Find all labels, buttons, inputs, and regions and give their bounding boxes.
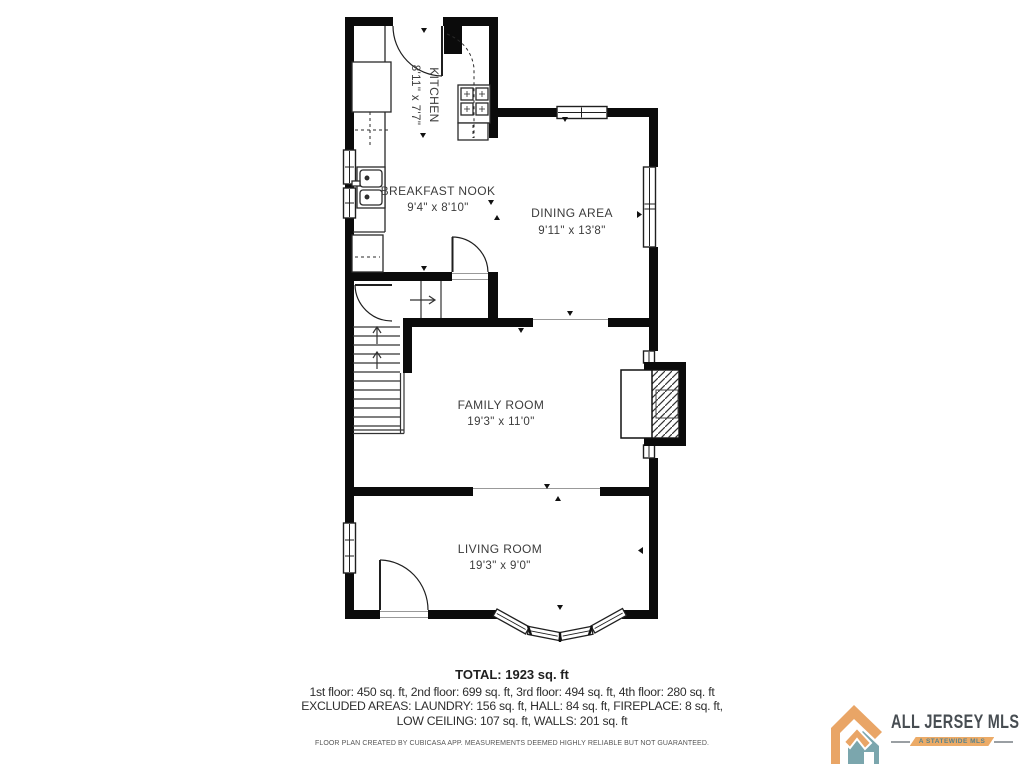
kitchen-label: KITCHEN [427,67,441,122]
brand-ribbon: A STATEWIDE MLS [891,737,1013,746]
base-cabinet [352,235,383,272]
windows [344,107,656,574]
dining-area-label: DINING AREA [531,206,613,220]
kitchen-fixtures [352,26,490,272]
floor-areas: 1st floor: 450 sq. ft, 2nd floor: 699 sq… [0,685,1024,700]
brand-logo: ALL JERSEY MLS A STATEWIDE MLS [829,701,1019,767]
dining-area-dims: 9'11" x 13'8" [538,225,605,237]
floor-plan-page: KITCHEN 8'11" x 7'7" BREAKFAST NOOK 9'4"… [0,0,1024,768]
family-room-dims: 19'3" x 11'0" [467,416,534,428]
bay-window [493,609,626,642]
walls [345,17,658,619]
house-icon [829,701,887,765]
breakfast-nook-label: BREAKFAST NOOK [381,184,496,198]
ribbon-line-left [891,741,910,743]
breakfast-nook-door [452,237,488,272]
hall-curved-door [355,285,392,321]
staircase [353,281,441,434]
family-room-label: FAMILY ROOM [458,398,545,412]
brand-name: ALL JERSEY MLS [891,712,987,734]
living-room-door [380,560,428,610]
fireplace [621,362,686,446]
refrigerator [352,62,391,112]
house-door [864,752,874,764]
living-room-dims: 19'3" x 9'0" [469,560,530,572]
window-mullions [345,108,655,573]
total-area: TOTAL: 1923 sq. ft [0,668,1024,683]
kitchen-dims: 8'11" x 7'7" [409,65,421,126]
living-room-label: LIVING ROOM [458,542,542,556]
brand-tagline: A STATEWIDE MLS [910,737,995,746]
hearth [621,370,652,438]
breakfast-nook-dims: 9'4" x 8'10" [407,202,468,214]
ribbon-line-right [994,741,1013,743]
floor-plan: KITCHEN 8'11" x 7'7" BREAKFAST NOOK 9'4"… [0,0,1024,768]
